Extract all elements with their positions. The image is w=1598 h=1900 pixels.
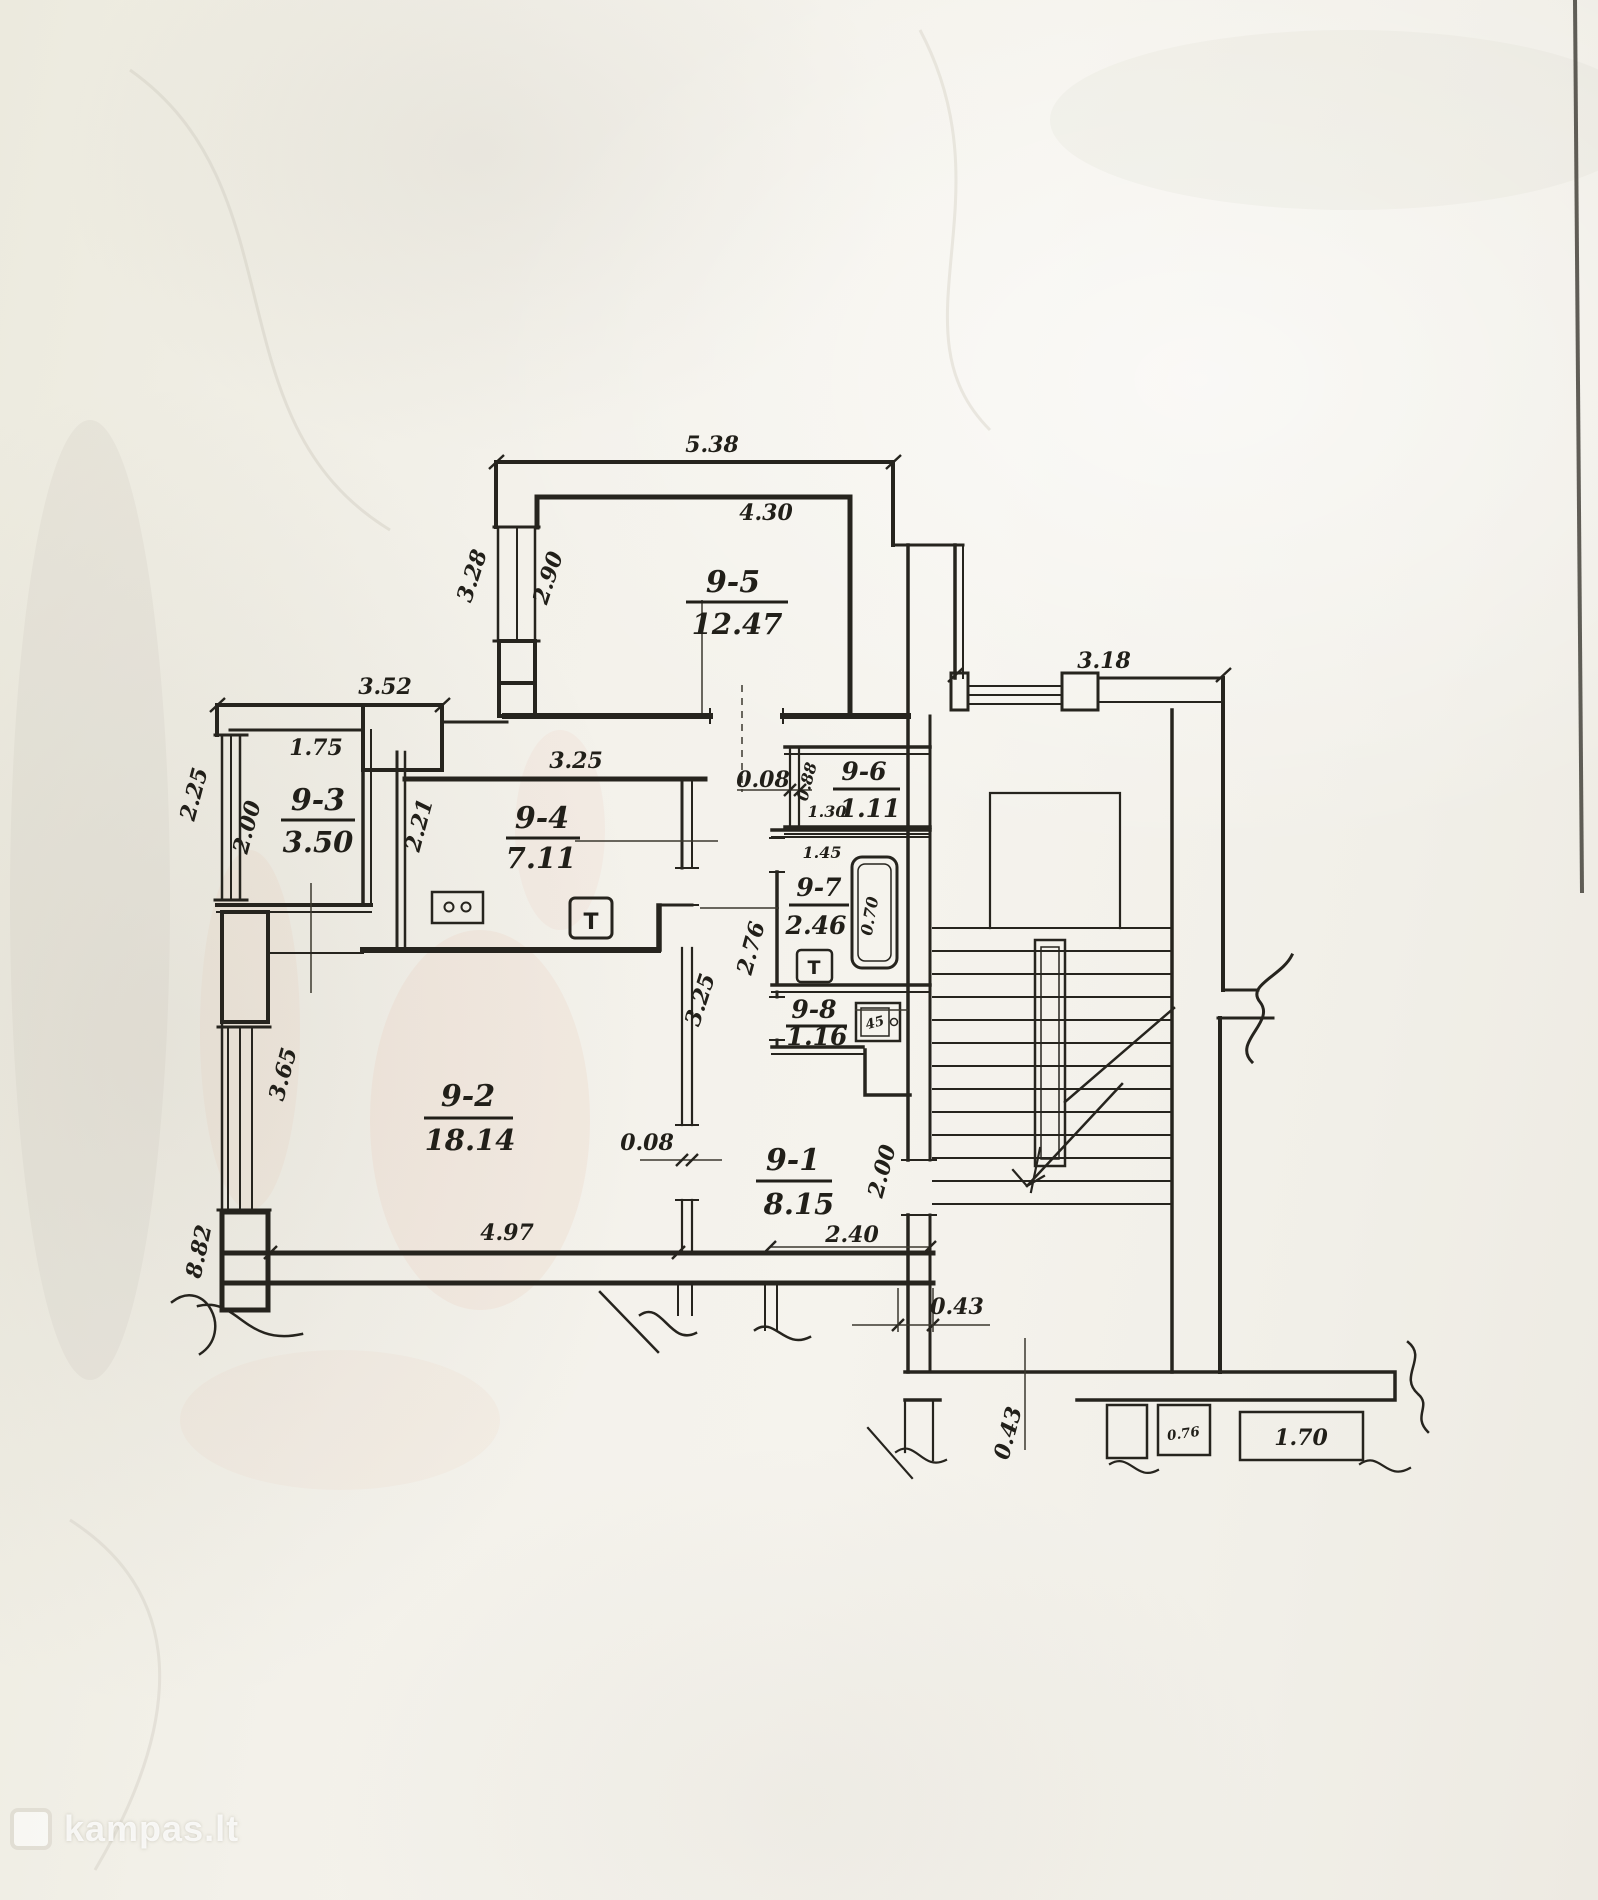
svg-text:1.11: 1.11 [840, 794, 901, 823]
dim-430: 4.30 [739, 500, 793, 526]
room-label-9-3: 9-3 3.50 [281, 783, 355, 859]
dim-088: 0.88 [792, 760, 820, 803]
dim-145: 1.45 [803, 843, 842, 862]
wall-break-bottom-right [1110, 1460, 1410, 1473]
dim-328: 3.28 [452, 546, 493, 605]
stove-burner-icon [462, 903, 471, 912]
svg-text:12.47: 12.47 [692, 607, 783, 641]
dim-45-sink: 45 [864, 1013, 886, 1033]
kampas-logo-icon [10, 1808, 52, 1850]
dim-076-window: 0.76 [1166, 1424, 1201, 1445]
dim-290: 2.90 [527, 548, 569, 609]
dim-240: 2.40 [824, 1222, 879, 1248]
scanned-floor-plan-page: 5.38 4.30 3.28 2.90 3.52 1.75 2.25 2.00 … [0, 0, 1598, 1900]
room-label-9-1: 9-1 8.15 [756, 1143, 834, 1221]
bath-t-letter: T [808, 957, 821, 979]
wall-break-bottom [600, 1292, 810, 1352]
svg-text:9-3: 9-3 [291, 783, 345, 818]
dim-008-bottom: 0.08 [620, 1130, 674, 1156]
wall-break-under-vestibule [868, 1428, 946, 1478]
wall-break-bottom-left [172, 1295, 302, 1354]
svg-text:7.11: 7.11 [506, 841, 577, 875]
dim-170-window: 1.70 [1274, 1425, 1328, 1451]
stove-icon [432, 892, 483, 923]
wall-break-right-end [1408, 1342, 1428, 1432]
svg-text:2.46: 2.46 [785, 911, 847, 940]
room-label-9-8: 9-8 1.16 [786, 995, 847, 1051]
walls [172, 462, 1428, 1478]
dim-352: 3.52 [358, 674, 412, 700]
svg-text:9-7: 9-7 [796, 873, 842, 902]
svg-text:9-5: 9-5 [706, 565, 760, 600]
basement-window-small [1107, 1405, 1147, 1458]
dim-225: 2.25 [174, 765, 213, 824]
dim-008-top: 0.08 [736, 767, 790, 793]
stove-burner-icon [445, 903, 454, 912]
dim-175: 1.75 [289, 735, 343, 761]
dim-365: 3.65 [264, 1045, 303, 1103]
svg-text:8.15: 8.15 [763, 1187, 835, 1221]
room-label-9-5: 9-5 12.47 [686, 565, 788, 641]
dimension-lines [210, 455, 1231, 1450]
dim-043-v: 0.43 [989, 1404, 1028, 1462]
staircase [933, 793, 1174, 1204]
dim-882: 8.82 [181, 1223, 218, 1282]
svg-text:3.50: 3.50 [283, 825, 354, 859]
dim-070-bathtub: 0.70 [857, 895, 882, 937]
dim-538: 5.38 [685, 432, 739, 458]
wall-break-right [1247, 955, 1292, 1062]
dim-318: 3.18 [1077, 648, 1131, 674]
room-label-9-6: 9-6 1.11 [833, 757, 900, 823]
watermark: kampas.lt [10, 1808, 239, 1850]
paper-edge-line [1575, 0, 1582, 893]
dim-043-h: 0.43 [930, 1294, 984, 1320]
floor-plan-drawing: 5.38 4.30 3.28 2.90 3.52 1.75 2.25 2.00 … [0, 0, 1598, 1900]
dim-276: 2.76 [731, 919, 770, 978]
svg-text:9-4: 9-4 [515, 801, 569, 836]
room-label-9-7: 9-7 2.46 [785, 873, 849, 940]
room-label-9-4: 9-4 7.11 [506, 801, 580, 875]
dim-497: 4.97 [480, 1220, 534, 1246]
svg-text:18.14: 18.14 [425, 1123, 516, 1157]
svg-text:9-6: 9-6 [841, 757, 886, 786]
dim-200-hall: 2.00 [862, 1141, 901, 1201]
svg-text:1.16: 1.16 [787, 1022, 848, 1051]
dim-200-window: 2.00 [227, 797, 266, 857]
kitchen-t-letter: T [583, 910, 598, 935]
watermark-text: kampas.lt [64, 1808, 239, 1850]
svg-text:9-8: 9-8 [791, 995, 836, 1024]
svg-text:9-2: 9-2 [441, 1079, 495, 1114]
room-label-9-2: 9-2 18.14 [424, 1079, 515, 1157]
svg-text:9-1: 9-1 [766, 1143, 820, 1178]
sink-tap-icon [891, 1019, 898, 1026]
dim-325-room94: 3.25 [549, 748, 603, 774]
stair-direction-arrow [1013, 1148, 1044, 1192]
room-labels: 9-5 12.47 9-3 3.50 9-4 7.11 9-6 1.11 9-7… [281, 565, 900, 1221]
dim-325-hall: 3.25 [680, 970, 721, 1029]
